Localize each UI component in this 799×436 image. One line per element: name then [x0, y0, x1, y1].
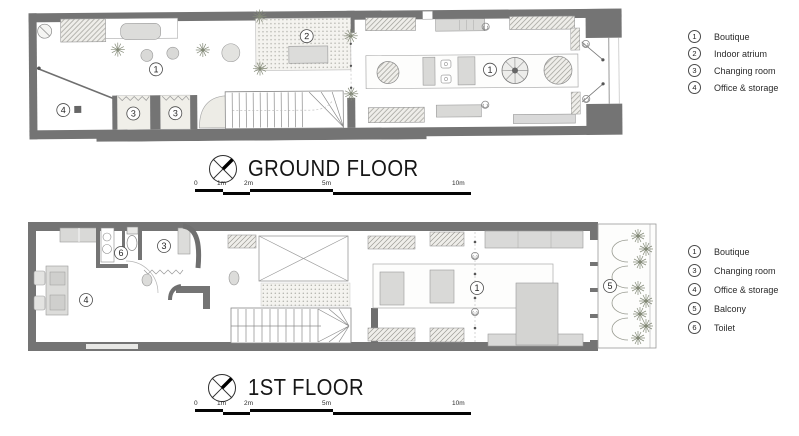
- entrance-pier: [571, 28, 580, 50]
- svg-text:6: 6: [118, 248, 123, 258]
- legend-number: 4: [688, 283, 701, 296]
- legend-number: 6: [688, 321, 701, 334]
- svg-text:3: 3: [131, 108, 136, 118]
- legend-label: Indoor atrium: [714, 49, 767, 59]
- legend-item-balcony: 5 Balcony: [688, 303, 778, 314]
- scale-tick-label: 10m: [452, 400, 465, 407]
- svg-text:1: 1: [153, 64, 158, 74]
- room-label-atrium: 2: [300, 30, 313, 43]
- chair: [34, 296, 45, 310]
- svg-text:2: 2: [304, 31, 309, 41]
- bench: [513, 114, 575, 123]
- display-platform: [366, 54, 578, 89]
- legend-label: Changing room: [714, 266, 776, 276]
- round-display-table: [377, 61, 399, 83]
- sofa: [121, 23, 161, 39]
- legend-label: Balcony: [714, 304, 746, 314]
- shopfront-column-recess: [423, 11, 433, 19]
- legend-number: 1: [688, 30, 701, 43]
- legend-number: 3: [688, 64, 701, 77]
- svg-text:3: 3: [161, 241, 166, 251]
- legend-number: 2: [688, 47, 701, 60]
- indoor-atrium: [256, 18, 351, 71]
- legend-item-changing-room: 3 Changing room: [688, 265, 778, 276]
- display-shelf: [61, 19, 106, 42]
- first-floor-legend: 1 Boutique 3 Changing room 4 Office & st…: [688, 246, 778, 333]
- legend-number: 5: [688, 302, 701, 315]
- window-band: [86, 344, 138, 349]
- legend-item-changing-room: 3 Changing room: [688, 65, 778, 76]
- room-label-office: 4: [80, 294, 93, 307]
- scale-tick-label: 2m: [244, 400, 253, 407]
- first-floor-title: 1ST FLOOR: [248, 375, 364, 399]
- legend-label: Office & storage: [714, 285, 778, 295]
- legend-item-toilet: 6 Toilet: [688, 322, 778, 333]
- first-scale-bar: 0 1m 2m 5m 10m: [195, 400, 471, 418]
- legend-item-office-storage: 4 Office & storage: [688, 82, 778, 93]
- first-floor-plan: 4 6 3 1 5: [26, 216, 666, 366]
- room-label-boutique-left: 1: [149, 63, 162, 76]
- svg-text:4: 4: [83, 295, 88, 305]
- legend-number: 1: [688, 245, 701, 258]
- round-display-table: [544, 56, 572, 84]
- scale-tick-label: 5m: [322, 400, 331, 407]
- room-label-balcony: 5: [604, 280, 617, 293]
- display-block: [516, 283, 558, 345]
- spiral-display: [502, 57, 528, 83]
- room-label-toilet: 6: [115, 247, 128, 260]
- svg-text:5: 5: [607, 281, 612, 291]
- scale-tick-label: 1m: [217, 180, 226, 187]
- ground-floor-plan: 1 2 3 3 4 1: [25, 4, 626, 143]
- chair: [34, 271, 45, 285]
- svg-text:4: 4: [61, 105, 66, 115]
- column: [74, 106, 81, 113]
- legend-number: 3: [688, 264, 701, 277]
- legend-item-boutique: 1 Boutique: [688, 31, 778, 42]
- atrium-table: [289, 46, 328, 63]
- room-label-office: 4: [57, 104, 70, 117]
- svg-text:1: 1: [474, 283, 479, 293]
- side-table: [142, 274, 152, 286]
- legend-label: Office & storage: [714, 83, 778, 93]
- scale-bar-graphic: [195, 409, 471, 415]
- scale-tick-label: 0: [194, 400, 198, 407]
- floor-plan-sheet: 1 2 3 3 4 1 GROUND FLOOR 0 1m 2m 5m 10m: [0, 0, 799, 436]
- scale-tick-label: 0: [194, 180, 198, 187]
- shelf: [228, 235, 256, 248]
- room-label-changing-b: 3: [169, 107, 182, 120]
- atrium-void: [259, 236, 348, 281]
- legend-label: Boutique: [714, 247, 750, 257]
- ground-scale-bar: 0 1m 2m 5m 10m: [195, 180, 471, 198]
- ground-staircase: [225, 91, 343, 129]
- ceiling-fan-icon: [38, 24, 52, 38]
- carpet: [261, 283, 350, 306]
- room-label-changing: 3: [158, 240, 171, 253]
- scale-tick-label: 5m: [322, 180, 331, 187]
- scale-bar-graphic: [195, 189, 471, 195]
- legend-item-boutique: 1 Boutique: [688, 246, 778, 257]
- room-label-changing-a: 3: [127, 107, 140, 120]
- glass-facade: [609, 38, 610, 104]
- legend-number: 4: [688, 81, 701, 94]
- first-staircase: [231, 308, 351, 343]
- bench: [178, 228, 190, 254]
- ground-floor-legend: 1 Boutique 2 Indoor atrium 3 Changing ro…: [688, 31, 778, 93]
- legend-label: Toilet: [714, 323, 735, 333]
- room-label-boutique: 1: [471, 282, 484, 295]
- legend-label: Boutique: [714, 32, 750, 42]
- armchair-icon: [441, 75, 451, 83]
- scale-tick-label: 10m: [452, 180, 465, 187]
- wc-icon: [127, 236, 137, 251]
- scale-tick-label: 2m: [244, 180, 253, 187]
- pouf: [167, 47, 179, 59]
- legend-item-indoor-atrium: 2 Indoor atrium: [688, 48, 778, 59]
- display-table: [430, 270, 454, 303]
- legend-item-office-storage: 4 Office & storage: [688, 284, 778, 295]
- side-table: [229, 271, 239, 285]
- ground-changing-rooms: [112, 95, 197, 130]
- pouf: [141, 49, 153, 61]
- ground-floor-title: GROUND FLOOR: [248, 156, 419, 180]
- svg-text:3: 3: [173, 108, 178, 118]
- scale-tick-label: 1m: [217, 400, 226, 407]
- entrance-pier: [571, 92, 580, 114]
- armchair-icon: [441, 60, 451, 68]
- round-rug: [222, 44, 240, 62]
- legend-label: Changing room: [714, 66, 776, 76]
- svg-text:1: 1: [487, 65, 492, 75]
- display-table: [380, 272, 404, 305]
- room-label-boutique-right: 1: [483, 63, 496, 76]
